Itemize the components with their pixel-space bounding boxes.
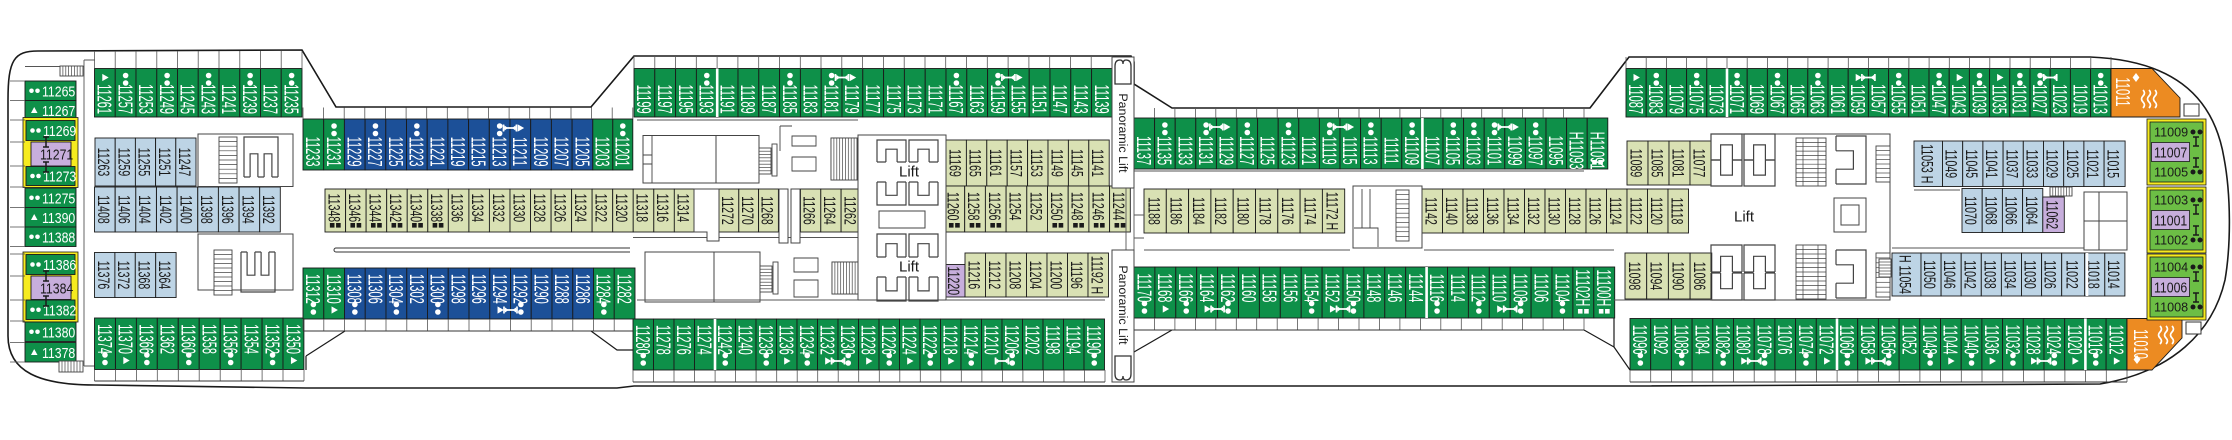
svg-text:11074: 11074	[1794, 325, 1816, 355]
svg-text:11066: 11066	[2002, 196, 2021, 225]
svg-text:11366: 11366	[135, 324, 157, 354]
svg-text:11002: 11002	[2154, 234, 2188, 248]
svg-text:11196: 11196	[1067, 261, 1086, 289]
svg-text:11159: 11159	[986, 85, 1008, 114]
svg-text:11326: 11326	[551, 194, 570, 223]
svg-text:11178: 11178	[1256, 197, 1275, 225]
svg-text:11020: 11020	[2063, 325, 2085, 355]
svg-text:11364: 11364	[155, 261, 174, 290]
svg-text:11221: 11221	[425, 137, 447, 167]
svg-text:11376: 11376	[94, 261, 113, 290]
svg-text:11001: 11001	[2154, 213, 2187, 229]
svg-text:11236: 11236	[775, 325, 797, 355]
svg-text:11173: 11173	[903, 85, 925, 114]
svg-text:11263: 11263	[95, 148, 114, 177]
svg-text:11264: 11264	[820, 196, 839, 225]
svg-text:11115: 11115	[1338, 137, 1360, 165]
svg-text:11184: 11184	[1189, 197, 1208, 225]
svg-text:11350: 11350	[281, 324, 303, 354]
svg-text:11332: 11332	[489, 194, 508, 223]
svg-text:11122: 11122	[1627, 197, 1646, 225]
svg-text:11328: 11328	[530, 194, 549, 223]
svg-text:H11093: H11093	[1565, 132, 1587, 170]
svg-text:11392: 11392	[260, 195, 279, 224]
svg-text:11330: 11330	[510, 194, 529, 223]
svg-text:11250: 11250	[1047, 192, 1066, 221]
svg-text:11030: 11030	[2021, 260, 2040, 289]
svg-text:11251: 11251	[155, 148, 174, 177]
svg-text:11113: 11113	[1359, 137, 1381, 165]
svg-text:11231: 11231	[322, 137, 344, 167]
svg-text:11259: 11259	[115, 148, 134, 177]
svg-text:11378: 11378	[42, 345, 76, 361]
svg-text:11089: 11089	[1627, 149, 1646, 178]
svg-text:11036: 11036	[1980, 325, 2002, 355]
svg-text:11314: 11314	[674, 194, 693, 223]
svg-text:11163: 11163	[965, 85, 987, 114]
svg-text:11276: 11276	[672, 325, 694, 355]
svg-text:11116: 11116	[1425, 274, 1447, 302]
svg-text:11014: 11014	[2104, 260, 2123, 289]
svg-text:11043: 11043	[1947, 84, 1969, 114]
svg-text:11284: 11284	[592, 274, 614, 304]
svg-text:11318: 11318	[633, 194, 652, 223]
svg-text:11182: 11182	[1212, 197, 1231, 225]
svg-text:11121: 11121	[1297, 136, 1319, 165]
svg-text:11154: 11154	[1300, 273, 1322, 302]
svg-text:11190: 11190	[1082, 325, 1104, 354]
svg-text:11132: 11132	[1524, 197, 1543, 225]
svg-text:11228: 11228	[857, 325, 879, 355]
svg-text:11246: 11246	[1089, 192, 1108, 221]
svg-text:11278: 11278	[652, 325, 674, 355]
svg-text:11248: 11248	[1068, 192, 1087, 221]
svg-text:11028: 11028	[2022, 325, 2044, 355]
svg-text:11060: 11060	[1835, 325, 1857, 355]
svg-text:11016: 11016	[2084, 325, 2106, 355]
svg-text:11127: 11127	[1235, 136, 1257, 165]
svg-text:11032: 11032	[2001, 325, 2023, 355]
svg-text:11223: 11223	[405, 137, 427, 167]
svg-text:11012: 11012	[2104, 325, 2126, 355]
svg-text:11125: 11125	[1256, 136, 1278, 165]
svg-text:11342: 11342	[386, 194, 405, 223]
svg-text:11141: 11141	[1089, 149, 1108, 177]
svg-text:11143: 11143	[1069, 85, 1091, 114]
svg-text:11175: 11175	[882, 85, 904, 114]
svg-text:H 11054: H 11054	[1896, 255, 1915, 294]
svg-text:11338: 11338	[428, 194, 447, 223]
svg-text:11253: 11253	[134, 84, 156, 114]
svg-text:11069: 11069	[1745, 84, 1767, 114]
svg-text:11340: 11340	[407, 194, 426, 223]
svg-text:11158: 11158	[1258, 273, 1280, 302]
svg-text:11118: 11118	[1668, 198, 1687, 225]
svg-text:11005: 11005	[2154, 166, 2188, 180]
svg-text:11098: 11098	[1625, 262, 1644, 291]
svg-text:11010: 11010	[2129, 329, 2151, 359]
svg-text:11152: 11152	[1320, 273, 1342, 302]
svg-text:11195: 11195	[674, 85, 696, 114]
svg-text:11079: 11079	[1664, 84, 1686, 114]
svg-text:11209: 11209	[529, 137, 551, 167]
svg-text:11034: 11034	[2001, 260, 2020, 289]
svg-text:11096: 11096	[1628, 325, 1650, 355]
svg-text:11247: 11247	[175, 148, 194, 177]
svg-text:11061: 11061	[1826, 84, 1848, 114]
svg-text:11097: 11097	[1524, 136, 1546, 166]
svg-text:11136: 11136	[1483, 197, 1502, 225]
svg-text:11356: 11356	[219, 324, 241, 354]
svg-text:Lift: Lift	[899, 259, 920, 276]
svg-text:11225: 11225	[384, 137, 406, 167]
svg-text:11094: 11094	[1647, 262, 1666, 291]
svg-text:11261: 11261	[93, 84, 115, 114]
svg-text:11106: 11106	[1529, 273, 1551, 302]
svg-text:11019: 11019	[2068, 84, 2090, 114]
svg-text:11204: 11204	[1026, 261, 1045, 290]
svg-text:11290: 11290	[529, 274, 551, 304]
svg-text:11252: 11252	[1027, 192, 1046, 221]
svg-text:11004: 11004	[2154, 261, 2188, 275]
svg-text:11103: 11103	[1462, 136, 1484, 165]
svg-text:11243: 11243	[196, 84, 218, 114]
svg-text:11346: 11346	[345, 194, 364, 223]
svg-text:11057: 11057	[1866, 84, 1888, 114]
svg-text:11031: 11031	[2008, 84, 2030, 114]
svg-text:11374: 11374	[93, 324, 115, 354]
svg-text:11033: 11033	[2023, 150, 2042, 179]
svg-text:11128: 11128	[1565, 197, 1584, 225]
svg-text:11052: 11052	[1897, 325, 1919, 355]
svg-text:11280: 11280	[631, 325, 653, 355]
svg-text:11027: 11027	[2028, 84, 2050, 114]
svg-text:11214: 11214	[959, 325, 981, 355]
svg-text:11187: 11187	[757, 85, 779, 114]
svg-text:11129: 11129	[1215, 136, 1237, 165]
svg-text:11344: 11344	[366, 194, 385, 223]
svg-text:11135: 11135	[1153, 136, 1175, 165]
svg-text:11267: 11267	[42, 103, 75, 119]
svg-text:11296: 11296	[467, 274, 489, 304]
svg-text:11153: 11153	[1027, 149, 1046, 177]
svg-text:11180: 11180	[1234, 197, 1253, 225]
svg-text:11133: 11133	[1173, 136, 1195, 165]
svg-text:11148: 11148	[1362, 273, 1384, 302]
svg-text:11013: 11013	[2089, 84, 2111, 114]
svg-text:11370: 11370	[114, 324, 136, 354]
svg-text:11308: 11308	[343, 274, 365, 304]
svg-text:11021: 11021	[2084, 150, 2103, 179]
svg-text:11294: 11294	[488, 274, 510, 304]
svg-text:11213: 11213	[487, 137, 509, 167]
svg-text:11070: 11070	[1962, 196, 1981, 225]
svg-text:11007: 11007	[2154, 145, 2187, 161]
svg-text:11282: 11282	[612, 274, 634, 304]
svg-text:11382: 11382	[43, 302, 76, 318]
svg-text:11167: 11167	[944, 85, 966, 114]
svg-text:Lift: Lift	[899, 164, 920, 181]
svg-text:11273: 11273	[43, 169, 77, 185]
svg-text:11056: 11056	[1877, 325, 1899, 355]
svg-text:11368: 11368	[135, 261, 154, 290]
svg-text:11083: 11083	[1644, 84, 1666, 114]
svg-text:11084: 11084	[1690, 325, 1712, 355]
svg-text:11372: 11372	[115, 261, 134, 290]
svg-text:11191: 11191	[715, 85, 737, 114]
svg-text:11249: 11249	[155, 84, 177, 114]
svg-text:11006: 11006	[2154, 280, 2188, 296]
svg-text:11237: 11237	[259, 84, 281, 114]
svg-text:11258: 11258	[965, 192, 984, 221]
svg-text:11040: 11040	[1959, 325, 1981, 355]
svg-text:11324: 11324	[571, 194, 590, 223]
svg-text:11161: 11161	[987, 149, 1006, 177]
svg-text:11402: 11402	[156, 195, 175, 224]
svg-text:11087: 11087	[1624, 84, 1646, 114]
svg-text:11206: 11206	[1000, 325, 1022, 355]
svg-text:11396: 11396	[218, 195, 237, 224]
svg-text:11274: 11274	[693, 325, 715, 355]
svg-text:11078: 11078	[1752, 325, 1774, 355]
svg-text:11055: 11055	[1887, 84, 1909, 114]
svg-text:11104: 11104	[1550, 273, 1572, 302]
svg-text:11039: 11039	[1967, 84, 1989, 114]
svg-text:11179: 11179	[840, 85, 862, 114]
svg-text:11203: 11203	[591, 137, 613, 167]
svg-text:11189: 11189	[736, 85, 758, 114]
svg-text:11051: 11051	[1907, 84, 1929, 114]
svg-text:11041: 11041	[1983, 150, 2002, 179]
svg-text:H11091: H11091	[1585, 132, 1607, 170]
svg-text:11404: 11404	[136, 195, 155, 224]
svg-text:11081: 11081	[1669, 149, 1688, 178]
svg-text:11242: 11242	[713, 325, 735, 355]
svg-text:11134: 11134	[1504, 197, 1523, 225]
svg-text:11138: 11138	[1463, 197, 1482, 225]
svg-text:Panoramic Lift: Panoramic Lift	[1116, 265, 1130, 345]
svg-text:11160: 11160	[1237, 273, 1259, 302]
svg-text:11398: 11398	[198, 195, 217, 224]
svg-text:11211: 11211	[508, 137, 530, 166]
svg-text:11042: 11042	[1961, 260, 1980, 289]
svg-text:11144: 11144	[1404, 273, 1426, 302]
svg-text:11262: 11262	[841, 196, 860, 225]
svg-text:11215: 11215	[467, 137, 489, 167]
svg-text:11202: 11202	[1021, 325, 1043, 355]
svg-text:11099: 11099	[1503, 136, 1525, 166]
svg-text:11151: 11151	[1027, 85, 1049, 114]
svg-text:11065: 11065	[1786, 84, 1808, 114]
svg-text:11165: 11165	[966, 149, 985, 177]
svg-text:11271: 11271	[40, 147, 73, 163]
svg-text:11380: 11380	[42, 324, 76, 340]
svg-text:11009: 11009	[2154, 126, 2188, 140]
svg-text:11149: 11149	[1048, 149, 1067, 177]
svg-text:11222: 11222	[918, 325, 940, 355]
svg-text:11298: 11298	[446, 274, 468, 304]
svg-text:11044: 11044	[1939, 325, 1961, 355]
svg-text:11201: 11201	[611, 137, 633, 167]
svg-text:11168: 11168	[1153, 273, 1175, 302]
svg-text:11240: 11240	[734, 325, 756, 355]
svg-text:11312: 11312	[301, 274, 323, 304]
svg-text:11077: 11077	[1690, 149, 1709, 178]
svg-text:11072: 11072	[1815, 325, 1837, 355]
svg-text:11257: 11257	[113, 84, 135, 114]
svg-text:11080: 11080	[1732, 325, 1754, 355]
svg-text:11164: 11164	[1195, 273, 1217, 302]
svg-text:11092: 11092	[1649, 325, 1671, 355]
svg-text:11067: 11067	[1765, 84, 1787, 114]
svg-text:11105: 11105	[1441, 136, 1463, 165]
svg-text:11177: 11177	[861, 85, 883, 114]
svg-text:11110: 11110	[1488, 274, 1510, 302]
svg-text:11197: 11197	[653, 85, 675, 114]
svg-text:11126: 11126	[1586, 197, 1605, 225]
svg-text:11270: 11270	[738, 196, 757, 225]
svg-text:11208: 11208	[1006, 261, 1025, 290]
svg-text:11286: 11286	[571, 274, 593, 304]
svg-text:11073: 11073	[1705, 84, 1727, 114]
svg-text:11360: 11360	[177, 324, 199, 354]
svg-text:11026: 11026	[2041, 260, 2060, 289]
svg-text:11170: 11170	[1132, 273, 1154, 302]
svg-text:11038: 11038	[1981, 260, 2000, 289]
svg-text:Panoramic Lift: Panoramic Lift	[1116, 93, 1130, 173]
svg-text:11238: 11238	[754, 325, 776, 355]
svg-text:11062: 11062	[2043, 201, 2062, 230]
svg-text:11302: 11302	[405, 274, 427, 304]
svg-text:11200: 11200	[1047, 261, 1066, 290]
svg-text:11304: 11304	[384, 274, 406, 304]
svg-text:11194: 11194	[1062, 325, 1084, 354]
svg-text:11053 H: 11053 H	[1918, 144, 1937, 183]
svg-text:11390: 11390	[42, 210, 76, 226]
svg-text:11362: 11362	[156, 324, 178, 354]
svg-text:11320: 11320	[613, 194, 632, 223]
svg-text:11112: 11112	[1467, 274, 1489, 302]
svg-text:11064: 11064	[2022, 196, 2041, 225]
svg-text:11229: 11229	[343, 137, 365, 167]
svg-text:11210: 11210	[980, 325, 1002, 355]
svg-text:11358: 11358	[198, 324, 220, 354]
svg-text:11023: 11023	[2048, 84, 2070, 114]
svg-text:11336: 11336	[448, 194, 467, 223]
svg-text:11322: 11322	[592, 194, 611, 223]
svg-text:11120: 11120	[1647, 197, 1666, 225]
svg-text:11147: 11147	[1048, 85, 1070, 114]
svg-text:11226: 11226	[877, 325, 899, 355]
svg-text:11316: 11316	[654, 194, 673, 223]
svg-text:11171: 11171	[923, 85, 945, 114]
svg-text:11155: 11155	[1007, 85, 1029, 114]
svg-text:11169: 11169	[946, 149, 965, 177]
svg-text:11176: 11176	[1278, 197, 1297, 225]
svg-text:11075: 11075	[1685, 84, 1707, 114]
svg-text:11192 H: 11192 H	[1088, 256, 1107, 294]
svg-text:11205: 11205	[570, 137, 592, 167]
svg-text:11008: 11008	[2154, 301, 2188, 315]
svg-text:11388: 11388	[42, 229, 76, 245]
svg-text:11146: 11146	[1383, 273, 1405, 302]
svg-text:11048: 11048	[1918, 325, 1940, 355]
svg-text:11310: 11310	[322, 274, 344, 304]
svg-text:11145: 11145	[1068, 149, 1087, 177]
svg-text:11123: 11123	[1276, 136, 1298, 165]
svg-text:11292: 11292	[509, 274, 531, 304]
svg-text:11193: 11193	[695, 85, 717, 114]
svg-text:11245: 11245	[176, 84, 198, 114]
svg-text:11352: 11352	[260, 324, 282, 354]
svg-text:11142: 11142	[1422, 197, 1441, 225]
svg-text:11265: 11265	[42, 83, 76, 99]
svg-text:11235: 11235	[279, 84, 301, 114]
svg-text:11086: 11086	[1691, 262, 1710, 291]
svg-text:11174: 11174	[1301, 197, 1320, 225]
svg-text:11156: 11156	[1279, 273, 1301, 302]
svg-text:11172 H: 11172 H	[1323, 192, 1342, 230]
svg-text:11207: 11207	[550, 137, 572, 167]
svg-text:11162: 11162	[1216, 273, 1238, 302]
svg-text:11185: 11185	[778, 85, 800, 114]
svg-text:11157: 11157	[1007, 149, 1026, 177]
svg-text:11037: 11037	[2003, 150, 2022, 179]
svg-text:11100H: 11100H	[1592, 269, 1614, 306]
svg-text:11114: 11114	[1446, 274, 1468, 302]
svg-text:11107: 11107	[1421, 136, 1443, 165]
svg-text:11384: 11384	[40, 280, 74, 296]
svg-text:11272: 11272	[718, 196, 737, 225]
svg-text:11219: 11219	[446, 137, 468, 167]
svg-text:11124: 11124	[1606, 197, 1625, 225]
svg-text:11025: 11025	[2063, 150, 2082, 179]
svg-text:11255: 11255	[135, 148, 154, 177]
svg-text:11111: 11111	[1379, 137, 1401, 164]
svg-text:11212: 11212	[985, 261, 1004, 290]
svg-text:11047: 11047	[1927, 84, 1949, 114]
svg-text:11137: 11137	[1132, 136, 1154, 165]
svg-text:11334: 11334	[469, 194, 488, 223]
svg-text:11085: 11085	[1648, 149, 1667, 178]
svg-text:11011: 11011	[2111, 78, 2133, 107]
svg-text:11140: 11140	[1442, 197, 1461, 225]
svg-text:11035: 11035	[1988, 84, 2010, 114]
svg-text:11306: 11306	[363, 274, 385, 304]
svg-text:11131: 11131	[1194, 136, 1216, 165]
svg-text:11218: 11218	[939, 325, 961, 355]
svg-text:11394: 11394	[239, 195, 258, 224]
svg-text:11241: 11241	[217, 84, 239, 114]
svg-text:11188: 11188	[1145, 197, 1164, 225]
svg-text:11275: 11275	[42, 190, 76, 206]
svg-text:11227: 11227	[363, 137, 385, 167]
svg-text:11101: 11101	[1482, 136, 1504, 165]
svg-text:11029: 11029	[2043, 150, 2062, 179]
svg-text:11015: 11015	[2104, 150, 2123, 179]
svg-text:11003: 11003	[2154, 194, 2188, 208]
svg-text:11059: 11059	[1846, 84, 1868, 114]
svg-text:11166: 11166	[1174, 273, 1196, 302]
svg-text:11232: 11232	[816, 325, 838, 355]
svg-text:11150: 11150	[1341, 273, 1363, 302]
svg-text:11256: 11256	[985, 192, 1004, 221]
svg-text:11233: 11233	[301, 137, 323, 167]
svg-text:Lift: Lift	[1734, 209, 1755, 226]
svg-text:11063: 11063	[1806, 84, 1828, 114]
svg-text:11220: 11220	[944, 267, 963, 296]
svg-text:11234: 11234	[795, 325, 817, 355]
